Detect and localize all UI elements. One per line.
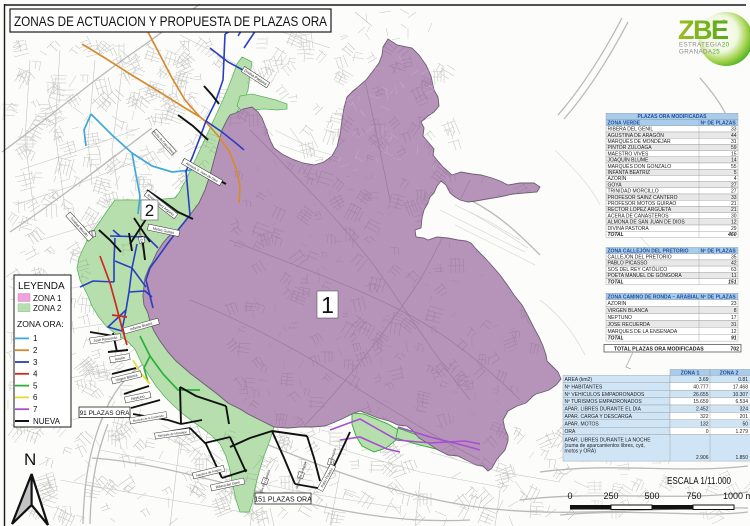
svg-text:31: 31 [731,139,737,145]
svg-text:14: 14 [731,158,737,164]
svg-text:TOTAL: TOTAL [608,232,624,238]
svg-text:Nº VEHICULOS EMPADRONADOS: Nº VEHICULOS EMPADRONADOS [565,392,645,398]
svg-text:30: 30 [731,213,737,219]
svg-text:NUEVA: NUEVA [33,417,61,426]
svg-text:12: 12 [731,329,737,335]
svg-text:ACERA DE CANASTEROS: ACERA DE CANASTEROS [608,213,670,219]
svg-text:ZONAS DE ACTUACION Y PROPUESTA: ZONAS DE ACTUACION Y PROPUESTA DE PLAZAS… [14,13,328,29]
svg-text:RIBERA DEL GENIL: RIBERA DEL GENIL [608,127,654,133]
svg-text:29: 29 [731,226,737,232]
svg-text:1000 m: 1000 m [723,491,750,501]
svg-text:15: 15 [731,151,737,157]
svg-text:ZONA CAMINO DE RONDA – ARABIAL: ZONA CAMINO DE RONDA – ARABIAL [608,294,699,300]
svg-text:151 PLAZAS ORA: 151 PLAZAS ORA [254,497,312,504]
svg-text:2.906: 2.906 [696,455,709,461]
svg-text:2: 2 [33,346,38,355]
svg-text:5: 5 [33,381,38,390]
svg-text:APAR. CARGA Y DESCARGA: APAR. CARGA Y DESCARGA [565,414,633,420]
svg-text:MARQUES DE LA ENSENADA: MARQUES DE LA ENSENADA [608,329,678,335]
svg-text:PLAZAS ORA MODIFICADAS: PLAZAS ORA MODIFICADAS [638,114,708,120]
svg-text:INFANTA BEATRIZ: INFANTA BEATRIZ [608,170,651,176]
svg-text:ZONA 2: ZONA 2 [33,304,62,313]
svg-text:33: 33 [731,127,737,133]
svg-text:91 PLAZAS ORA: 91 PLAZAS ORA [80,410,131,417]
svg-text:7: 7 [33,405,38,414]
svg-text:8: 8 [734,308,737,314]
svg-text:750: 750 [686,491,701,501]
svg-text:APAR. MOTOS: APAR. MOTOS [565,421,600,427]
svg-text:0.81: 0.81 [738,377,748,383]
svg-text:LEYENDA: LEYENDA [18,281,65,292]
svg-text:35: 35 [731,255,737,261]
svg-text:15.659: 15.659 [693,399,709,405]
svg-text:ORA: ORA [565,429,577,435]
svg-text:DIVINA PASTORA: DIVINA PASTORA [608,226,650,232]
svg-text:6.534: 6.534 [735,399,748,405]
svg-text:JOAQUÍN BLUME: JOAQUÍN BLUME [608,157,650,164]
svg-text:17: 17 [731,315,737,321]
svg-text:12: 12 [731,220,737,226]
svg-text:1: 1 [33,334,38,343]
svg-text:0: 0 [567,491,572,501]
svg-text:motos y ORA): motos y ORA) [565,449,597,455]
svg-text:17.468: 17.468 [733,384,749,390]
svg-text:VIRGEN BLANCA: VIRGEN BLANCA [608,308,649,314]
svg-text:ZBE: ZBE [678,15,728,45]
svg-text:26.655: 26.655 [693,392,709,398]
svg-text:21: 21 [731,201,737,207]
svg-text:21: 21 [731,207,737,213]
svg-text:50: 50 [742,421,748,427]
svg-text:4: 4 [33,370,38,379]
svg-text:PROFESOR MOTOS GUIRAO: PROFESOR MOTOS GUIRAO [608,201,677,207]
svg-text:4: 4 [734,176,737,182]
svg-text:GOYA: GOYA [608,182,623,188]
svg-text:ZONA ORA:: ZONA ORA: [17,319,64,329]
svg-text:PINTOR ZULOAGA: PINTOR ZULOAGA [608,145,653,151]
svg-text:ESTRATEGIA20: ESTRATEGIA20 [679,42,730,49]
svg-text:6: 6 [33,393,38,402]
svg-text:324: 324 [740,407,749,413]
svg-text:322: 322 [700,414,709,420]
svg-text:250: 250 [603,491,618,501]
svg-text:11: 11 [731,273,736,279]
svg-text:23: 23 [731,301,737,307]
svg-text:RECTOR LOPEZ ARGÜETA: RECTOR LOPEZ ARGÜETA [608,206,672,213]
svg-text:27: 27 [731,182,737,188]
svg-text:AZORIN: AZORIN [608,301,627,307]
svg-text:TOTAL: TOTAL [608,336,624,342]
svg-text:63: 63 [731,267,737,273]
svg-text:ZONA CALLEJÓN DEL PRETORIO: ZONA CALLEJÓN DEL PRETORIO [608,246,689,254]
svg-text:10.307: 10.307 [733,392,749,398]
svg-text:702: 702 [730,347,739,353]
svg-text:POETA MANUEL DE GÓNGORA: POETA MANUEL DE GÓNGORA [608,272,683,279]
svg-text:2: 2 [145,201,154,220]
svg-text:42: 42 [731,261,737,267]
svg-text:ZONA VERDE: ZONA VERDE [608,121,641,127]
svg-text:PROFESOR SAINZ CANTERO: PROFESOR SAINZ CANTERO [608,195,678,201]
svg-text:CALLEJÓN DEL PRETORIO: CALLEJÓN DEL PRETORIO [608,254,672,261]
svg-text:1: 1 [321,292,334,318]
svg-text:TOTAL: TOTAL [608,279,624,285]
svg-text:460: 460 [727,232,737,238]
svg-text:TRINIDAD MORCILLO: TRINIDAD MORCILLO [608,189,659,195]
svg-text:ZONA 1: ZONA 1 [33,294,62,303]
svg-text:91: 91 [731,336,737,342]
svg-text:500: 500 [644,491,659,501]
svg-text:MARQUÉS DE MONDÉJAR: MARQUÉS DE MONDÉJAR [608,138,671,145]
svg-text:59: 59 [731,145,737,151]
svg-text:5: 5 [734,170,737,176]
svg-text:0: 0 [706,429,709,435]
svg-text:201: 201 [740,414,749,420]
svg-text:55: 55 [731,164,737,170]
svg-text:Nº HABITANTES: Nº HABITANTES [565,384,604,390]
svg-text:27: 27 [731,189,737,195]
svg-text:1.850: 1.850 [735,455,748,461]
svg-text:44: 44 [731,133,737,139]
svg-text:APAR. LIBRES DURANTE EL DIA: APAR. LIBRES DURANTE EL DIA [565,407,642,413]
svg-text:MAESTRO VIVES: MAESTRO VIVES [608,151,650,157]
svg-text:151: 151 [728,279,737,285]
svg-text:Nº DE PLAZAS: Nº DE PLAZAS [701,121,737,127]
svg-text:3.69: 3.69 [699,377,709,383]
svg-text:AREA (km2): AREA (km2) [565,377,593,383]
svg-text:Nº TURISMOS EMPADRONADOS: Nº TURISMOS EMPADRONADOS [565,399,643,405]
svg-text:ESCALA 1/11.000: ESCALA 1/11.000 [667,476,731,487]
svg-text:GRANADA25: GRANADA25 [679,49,720,56]
svg-text:JOSE RECUERDA: JOSE RECUERDA [608,322,651,328]
svg-text:TOTAL PLAZAS ORA MODIFICADAS: TOTAL PLAZAS ORA MODIFICADAS [614,347,704,353]
svg-text:Nº DE PLAZAS: Nº DE PLAZAS [701,294,737,300]
svg-text:1.279: 1.279 [735,429,748,435]
svg-text:31: 31 [731,322,737,328]
svg-text:33: 33 [731,195,737,201]
svg-text:132: 132 [700,421,709,427]
svg-text:MARQUÉS DON GONZALO: MARQUÉS DON GONZALO [608,163,672,170]
svg-text:N: N [24,450,36,469]
svg-text:NEPTUNO: NEPTUNO [608,315,633,321]
svg-text:SOS DEL REY CATÓLICO: SOS DEL REY CATÓLICO [608,266,668,273]
svg-text:PABLO PICASSO: PABLO PICASSO [608,261,648,267]
svg-text:AGUSTINA DE ARAGÓN: AGUSTINA DE ARAGÓN [608,132,665,139]
svg-text:AZORÍN: AZORÍN [608,175,627,182]
svg-text:3: 3 [33,358,38,367]
svg-text:ALMONA DE SAN JUAN DE DIOS: ALMONA DE SAN JUAN DE DIOS [608,220,686,226]
svg-text:40.777: 40.777 [693,384,709,390]
svg-text:2.452: 2.452 [696,407,709,413]
